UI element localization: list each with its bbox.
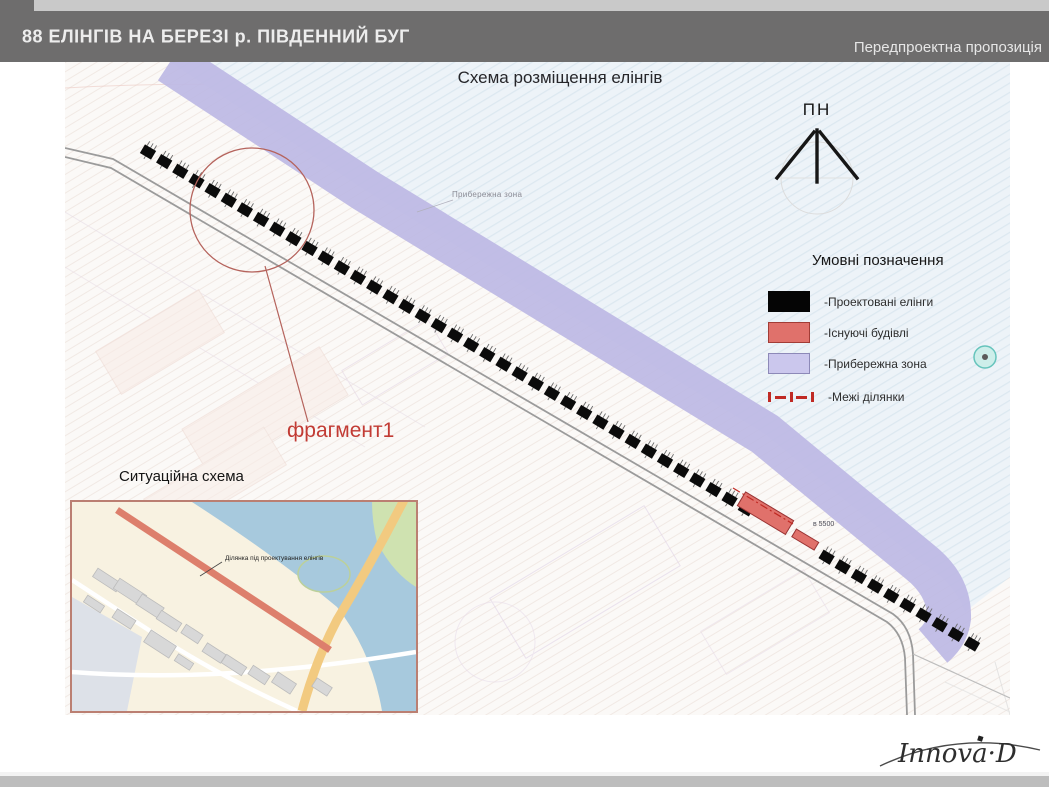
situational-map: Ділянка під проектування елінгів <box>70 500 418 713</box>
legend-item-projected-boathouses: -Проектовані елінги <box>768 291 1000 312</box>
header-bar: 88 ЕЛІНГІВ НА БЕРЕЗІ р. ПІВДЕННИЙ БУГ Пе… <box>0 11 1049 62</box>
legend: Умовні позначення -Проектовані елінги -І… <box>768 252 1000 404</box>
legend-item-existing-buildings: -Існуючі будівлі <box>768 322 1000 343</box>
inset-site-label: Ділянка під проектування елінгів <box>225 554 324 562</box>
legend-swatch-lavender <box>768 353 810 374</box>
situational-map-drawing: Ділянка під проектування елінгів <box>72 502 416 711</box>
legend-swatch-black <box>768 291 810 312</box>
legend-swatch-red <box>768 322 810 343</box>
footer-bar <box>0 776 1049 787</box>
top-strip <box>0 0 1049 11</box>
north-label: ПН <box>755 100 879 120</box>
coastal-zone-map-label: Прибережна зона <box>452 190 522 199</box>
logo-text: Innova·D <box>898 739 1017 769</box>
legend-title: Умовні позначення <box>812 252 1000 269</box>
company-logo: Innova·D <box>878 724 1044 776</box>
legend-item-site-boundaries: -Межі ділянки <box>768 390 1000 404</box>
legend-swatch-boundary <box>768 392 814 402</box>
dimension-label: в 5500 <box>813 521 834 528</box>
fragment1-label: фрагмент1 <box>287 419 394 443</box>
inset-title: Ситуаційна схема <box>119 468 244 485</box>
north-arrow-icon <box>755 120 879 216</box>
page-title: 88 ЕЛІНГІВ НА БЕРЕЗІ р. ПІВДЕННИЙ БУГ <box>22 26 410 47</box>
north-indicator: ПН <box>755 100 879 221</box>
legend-item-coastal-zone: -Прибережна зона <box>768 353 1000 374</box>
header-subtitle: Передпроектна пропозиція <box>854 39 1042 56</box>
plan-title: Схема розміщення елінгів <box>430 68 690 88</box>
corner-notch <box>0 0 34 11</box>
